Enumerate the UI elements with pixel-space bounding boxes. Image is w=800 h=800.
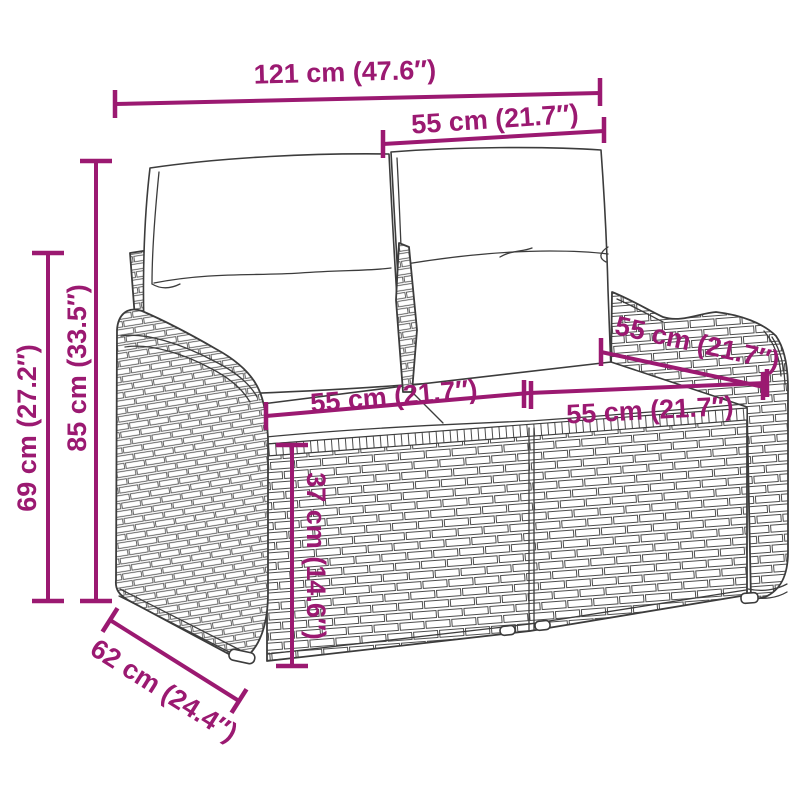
dimension-label: 85 cm (33.5″) xyxy=(62,284,92,452)
diagram-canvas: 121 cm (47.6″) 55 cm (21.7″) 85 cm (33.5… xyxy=(0,0,800,800)
front-panel xyxy=(267,408,747,661)
dimension-label: 121 cm (47.6″) xyxy=(253,55,436,90)
dimension-armrest-height: 69 cm (27.2″) xyxy=(12,253,64,601)
foot xyxy=(741,592,759,603)
foot xyxy=(535,620,551,631)
dimension-overall-height: 85 cm (33.5″) xyxy=(62,161,112,601)
foot xyxy=(500,625,516,636)
dimension-label: 69 cm (27.2″) xyxy=(12,344,42,512)
product-dimension-diagram: 121 cm (47.6″) 55 cm (21.7″) 85 cm (33.5… xyxy=(0,0,800,800)
dimension-label: 37 cm (14.6″) xyxy=(301,472,331,640)
right-back-cushion xyxy=(391,148,611,385)
